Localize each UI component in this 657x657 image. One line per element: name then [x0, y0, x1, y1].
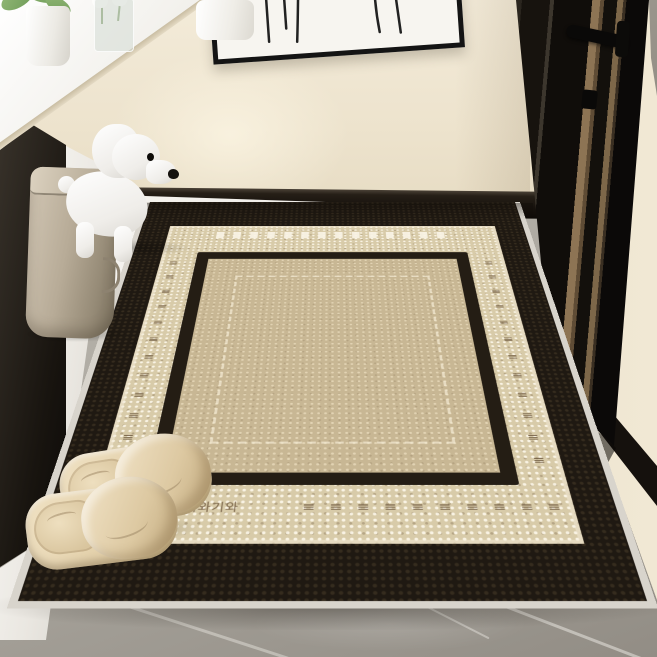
- white-canister: [196, 0, 254, 40]
- rug-bottom-dashes: ≡ ≡ ≡ ≡ ≡ ≡ ≡ ≡ ≡ ≡ ≡ ≡: [302, 501, 570, 525]
- dog-nose: [168, 169, 179, 179]
- wall-shadow: [455, 0, 530, 215]
- dog-leg: [114, 226, 132, 262]
- rug-top-pattern-row: [216, 232, 449, 238]
- plant-pot: [26, 6, 70, 66]
- rug-dotted-frame: [210, 276, 456, 444]
- door-handle-base: [615, 21, 630, 58]
- dog-leg: [76, 222, 94, 258]
- dog-figurine: [58, 124, 198, 258]
- glass-vase: [94, 0, 134, 52]
- entryway-scene: ≡ ≡ 기와기와 ≡ ≡ ≡ ≡ ≡ ≡ ≡ ≡ ≡ ≡ ≡ ≡ ≡ ≡ ≡ ≡…: [0, 0, 657, 657]
- door-lock: [581, 89, 598, 109]
- dog-eye: [147, 153, 154, 161]
